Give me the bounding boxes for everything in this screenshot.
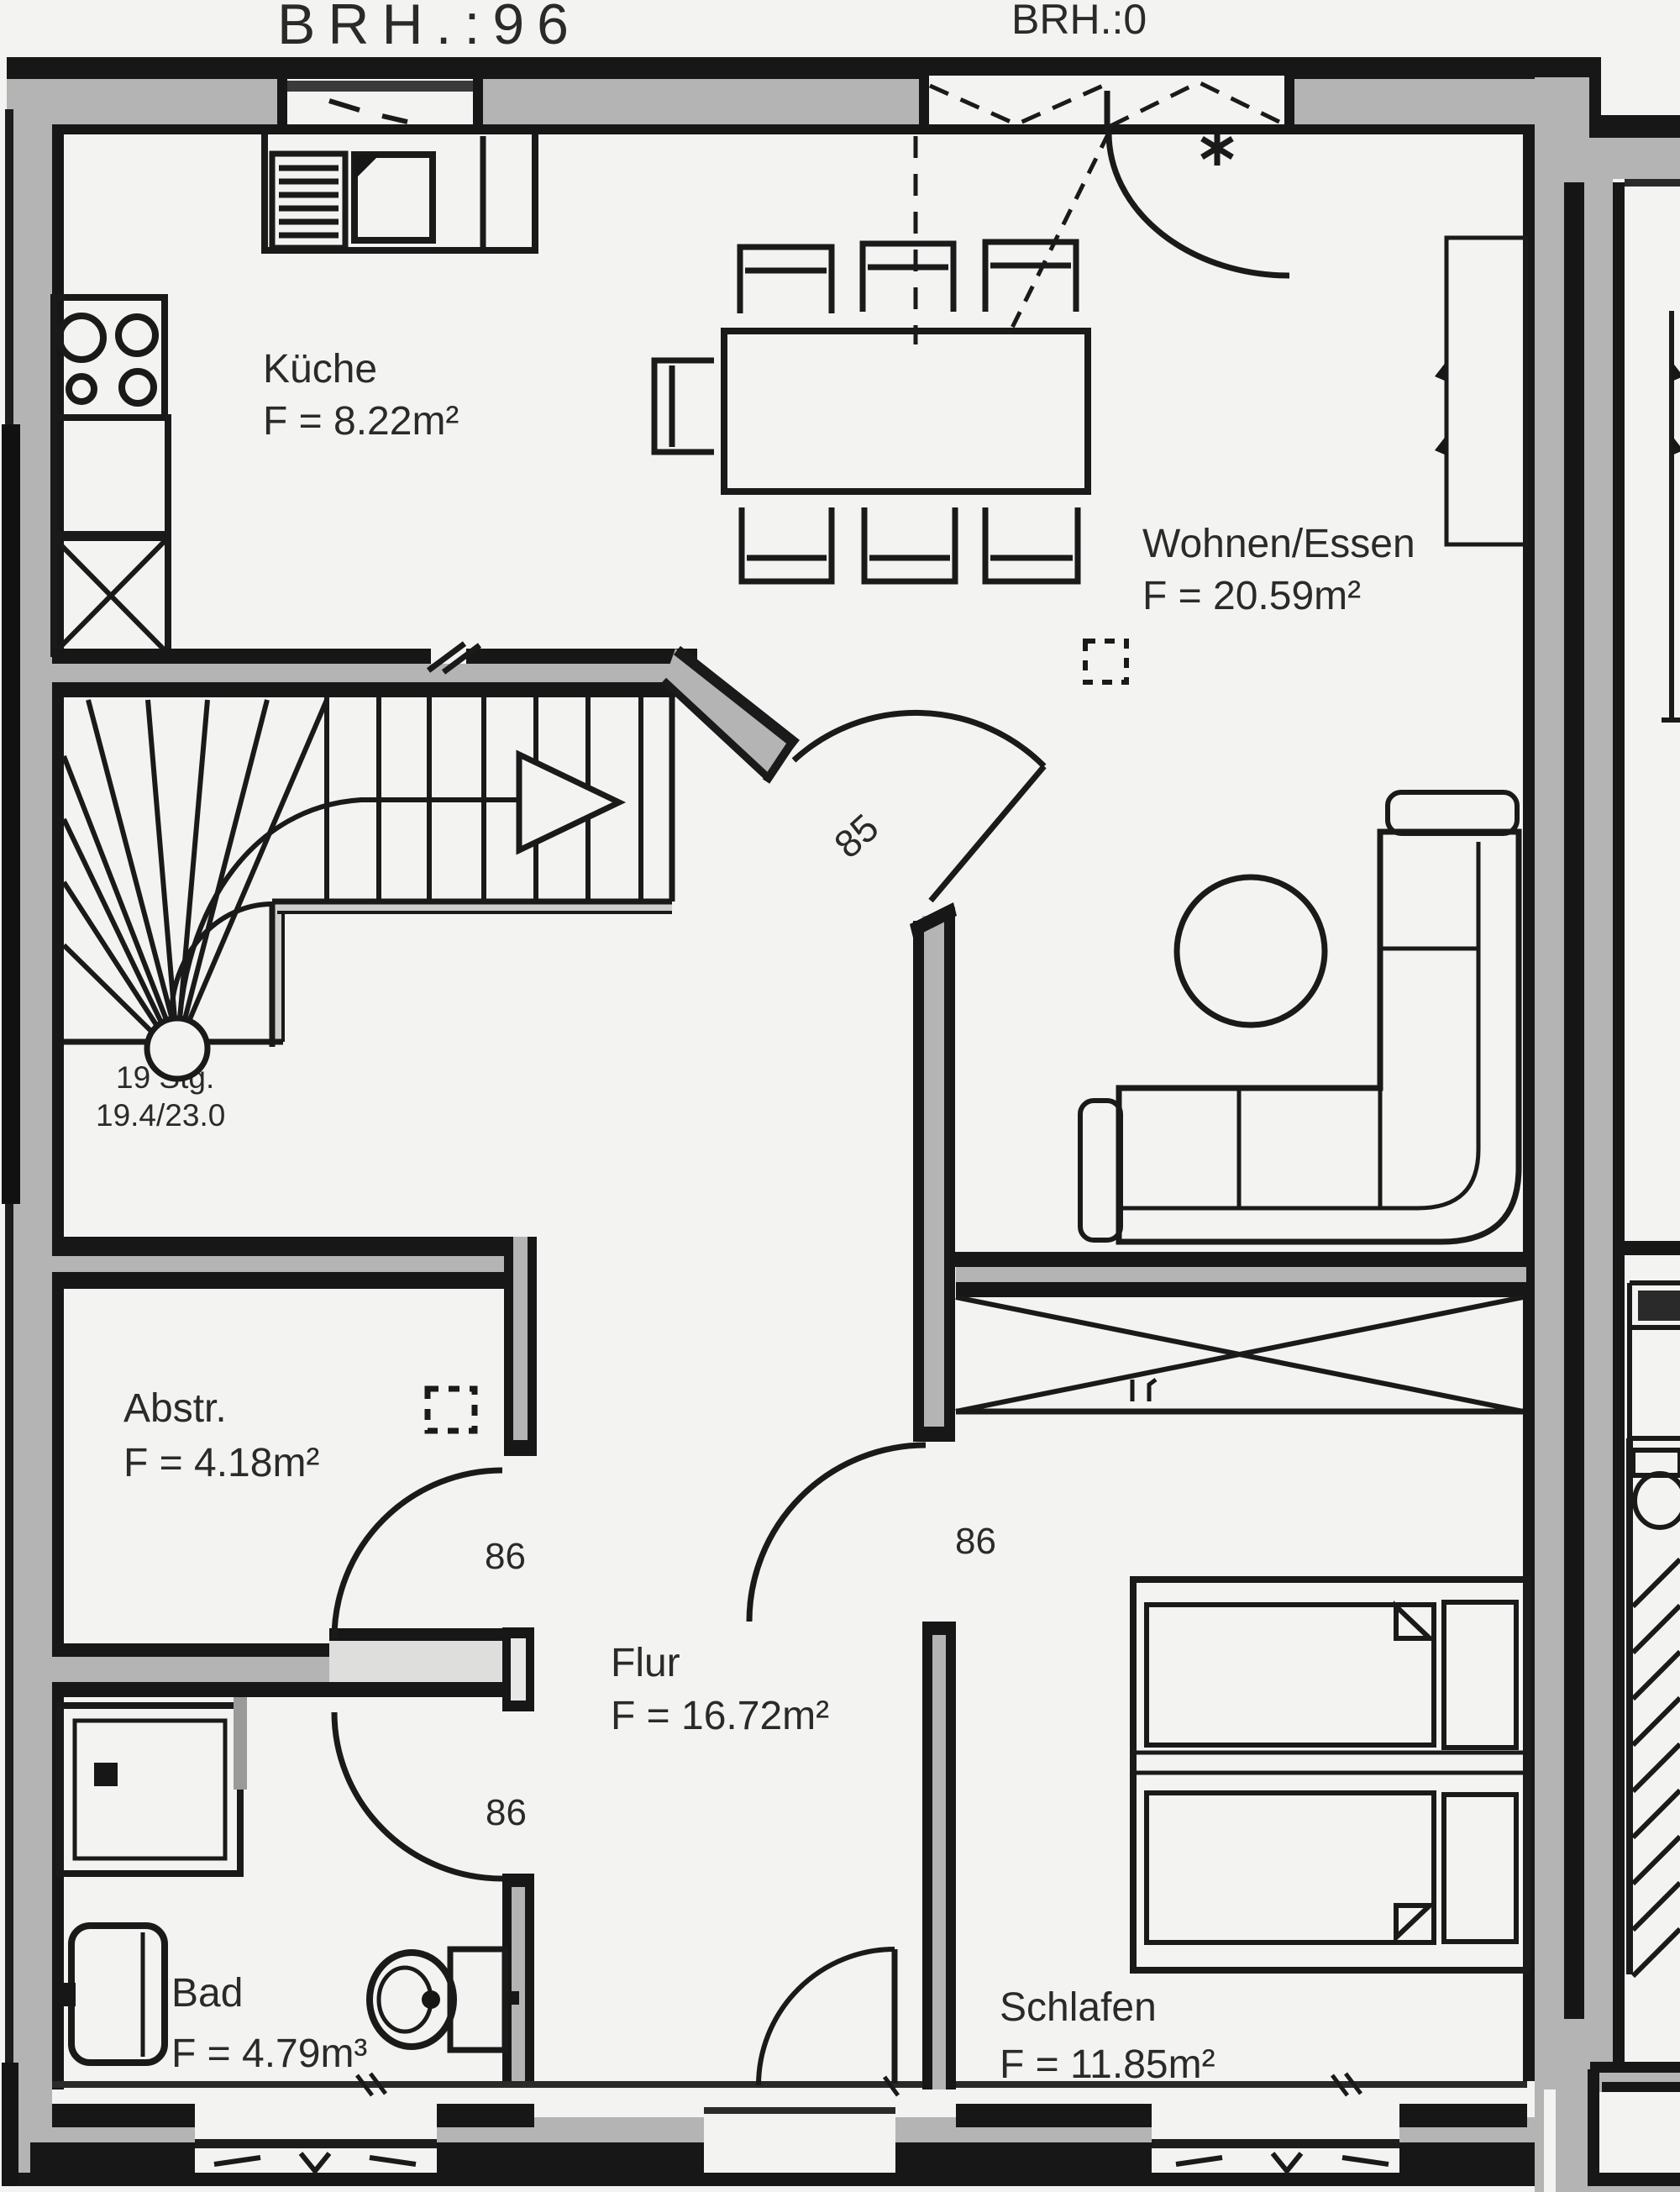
svg-text:86: 86	[485, 1536, 526, 1577]
svg-text:Abstr.: Abstr.	[123, 1386, 227, 1431]
svg-text:Flur: Flur	[611, 1641, 680, 1685]
svg-text:86: 86	[955, 1521, 996, 1562]
svg-text:F = 4.79m³: F = 4.79m³	[171, 2032, 367, 2076]
svg-text:Bad: Bad	[171, 1971, 243, 2016]
svg-text:Schlafen: Schlafen	[1000, 1985, 1157, 2030]
svg-text:F = 8.22m²: F = 8.22m²	[263, 399, 459, 444]
svg-text:19.4/23.0: 19.4/23.0	[96, 1098, 225, 1133]
svg-text:Wohnen/Essen: Wohnen/Essen	[1142, 522, 1415, 566]
svg-text:BRH.:96: BRH.:96	[277, 0, 581, 56]
svg-text:F = 11.85m²: F = 11.85m²	[1000, 2042, 1215, 2087]
svg-text:F = 4.18m²: F = 4.18m²	[123, 1441, 319, 1485]
svg-text:BRH.:0: BRH.:0	[1011, 0, 1147, 43]
svg-text:F = 20.59m²: F = 20.59m²	[1142, 574, 1361, 618]
svg-text:86: 86	[486, 1792, 527, 1833]
svg-text:F = 16.72m²: F = 16.72m²	[611, 1694, 829, 1738]
svg-text:Küche: Küche	[263, 347, 377, 392]
